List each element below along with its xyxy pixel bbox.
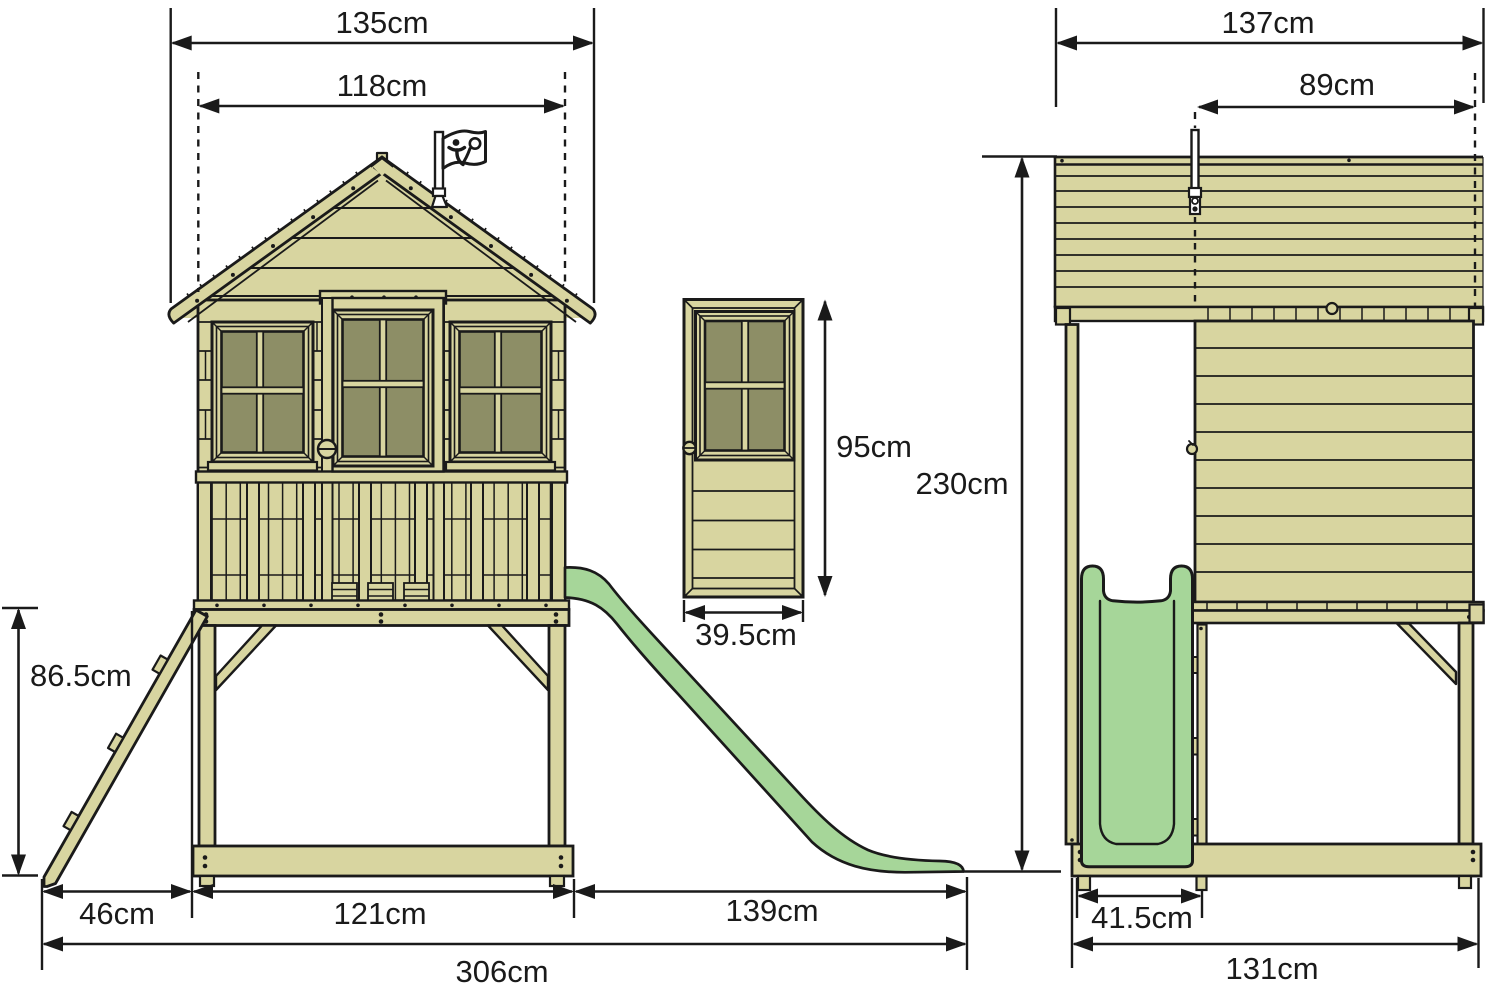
svg-text:230cm: 230cm (915, 466, 1008, 501)
svg-text:86.5cm: 86.5cm (30, 658, 132, 693)
svg-text:121cm: 121cm (333, 896, 426, 931)
svg-text:131cm: 131cm (1225, 951, 1318, 986)
svg-text:118cm: 118cm (337, 68, 428, 103)
svg-text:135cm: 135cm (335, 5, 428, 40)
svg-text:39.5cm: 39.5cm (695, 617, 797, 652)
svg-text:41.5cm: 41.5cm (1091, 900, 1193, 935)
svg-text:306cm: 306cm (455, 954, 548, 989)
svg-text:46cm: 46cm (79, 896, 155, 931)
svg-text:137cm: 137cm (1221, 5, 1314, 40)
svg-text:95cm: 95cm (836, 429, 912, 464)
svg-text:89cm: 89cm (1299, 67, 1375, 102)
svg-text:139cm: 139cm (725, 893, 818, 928)
